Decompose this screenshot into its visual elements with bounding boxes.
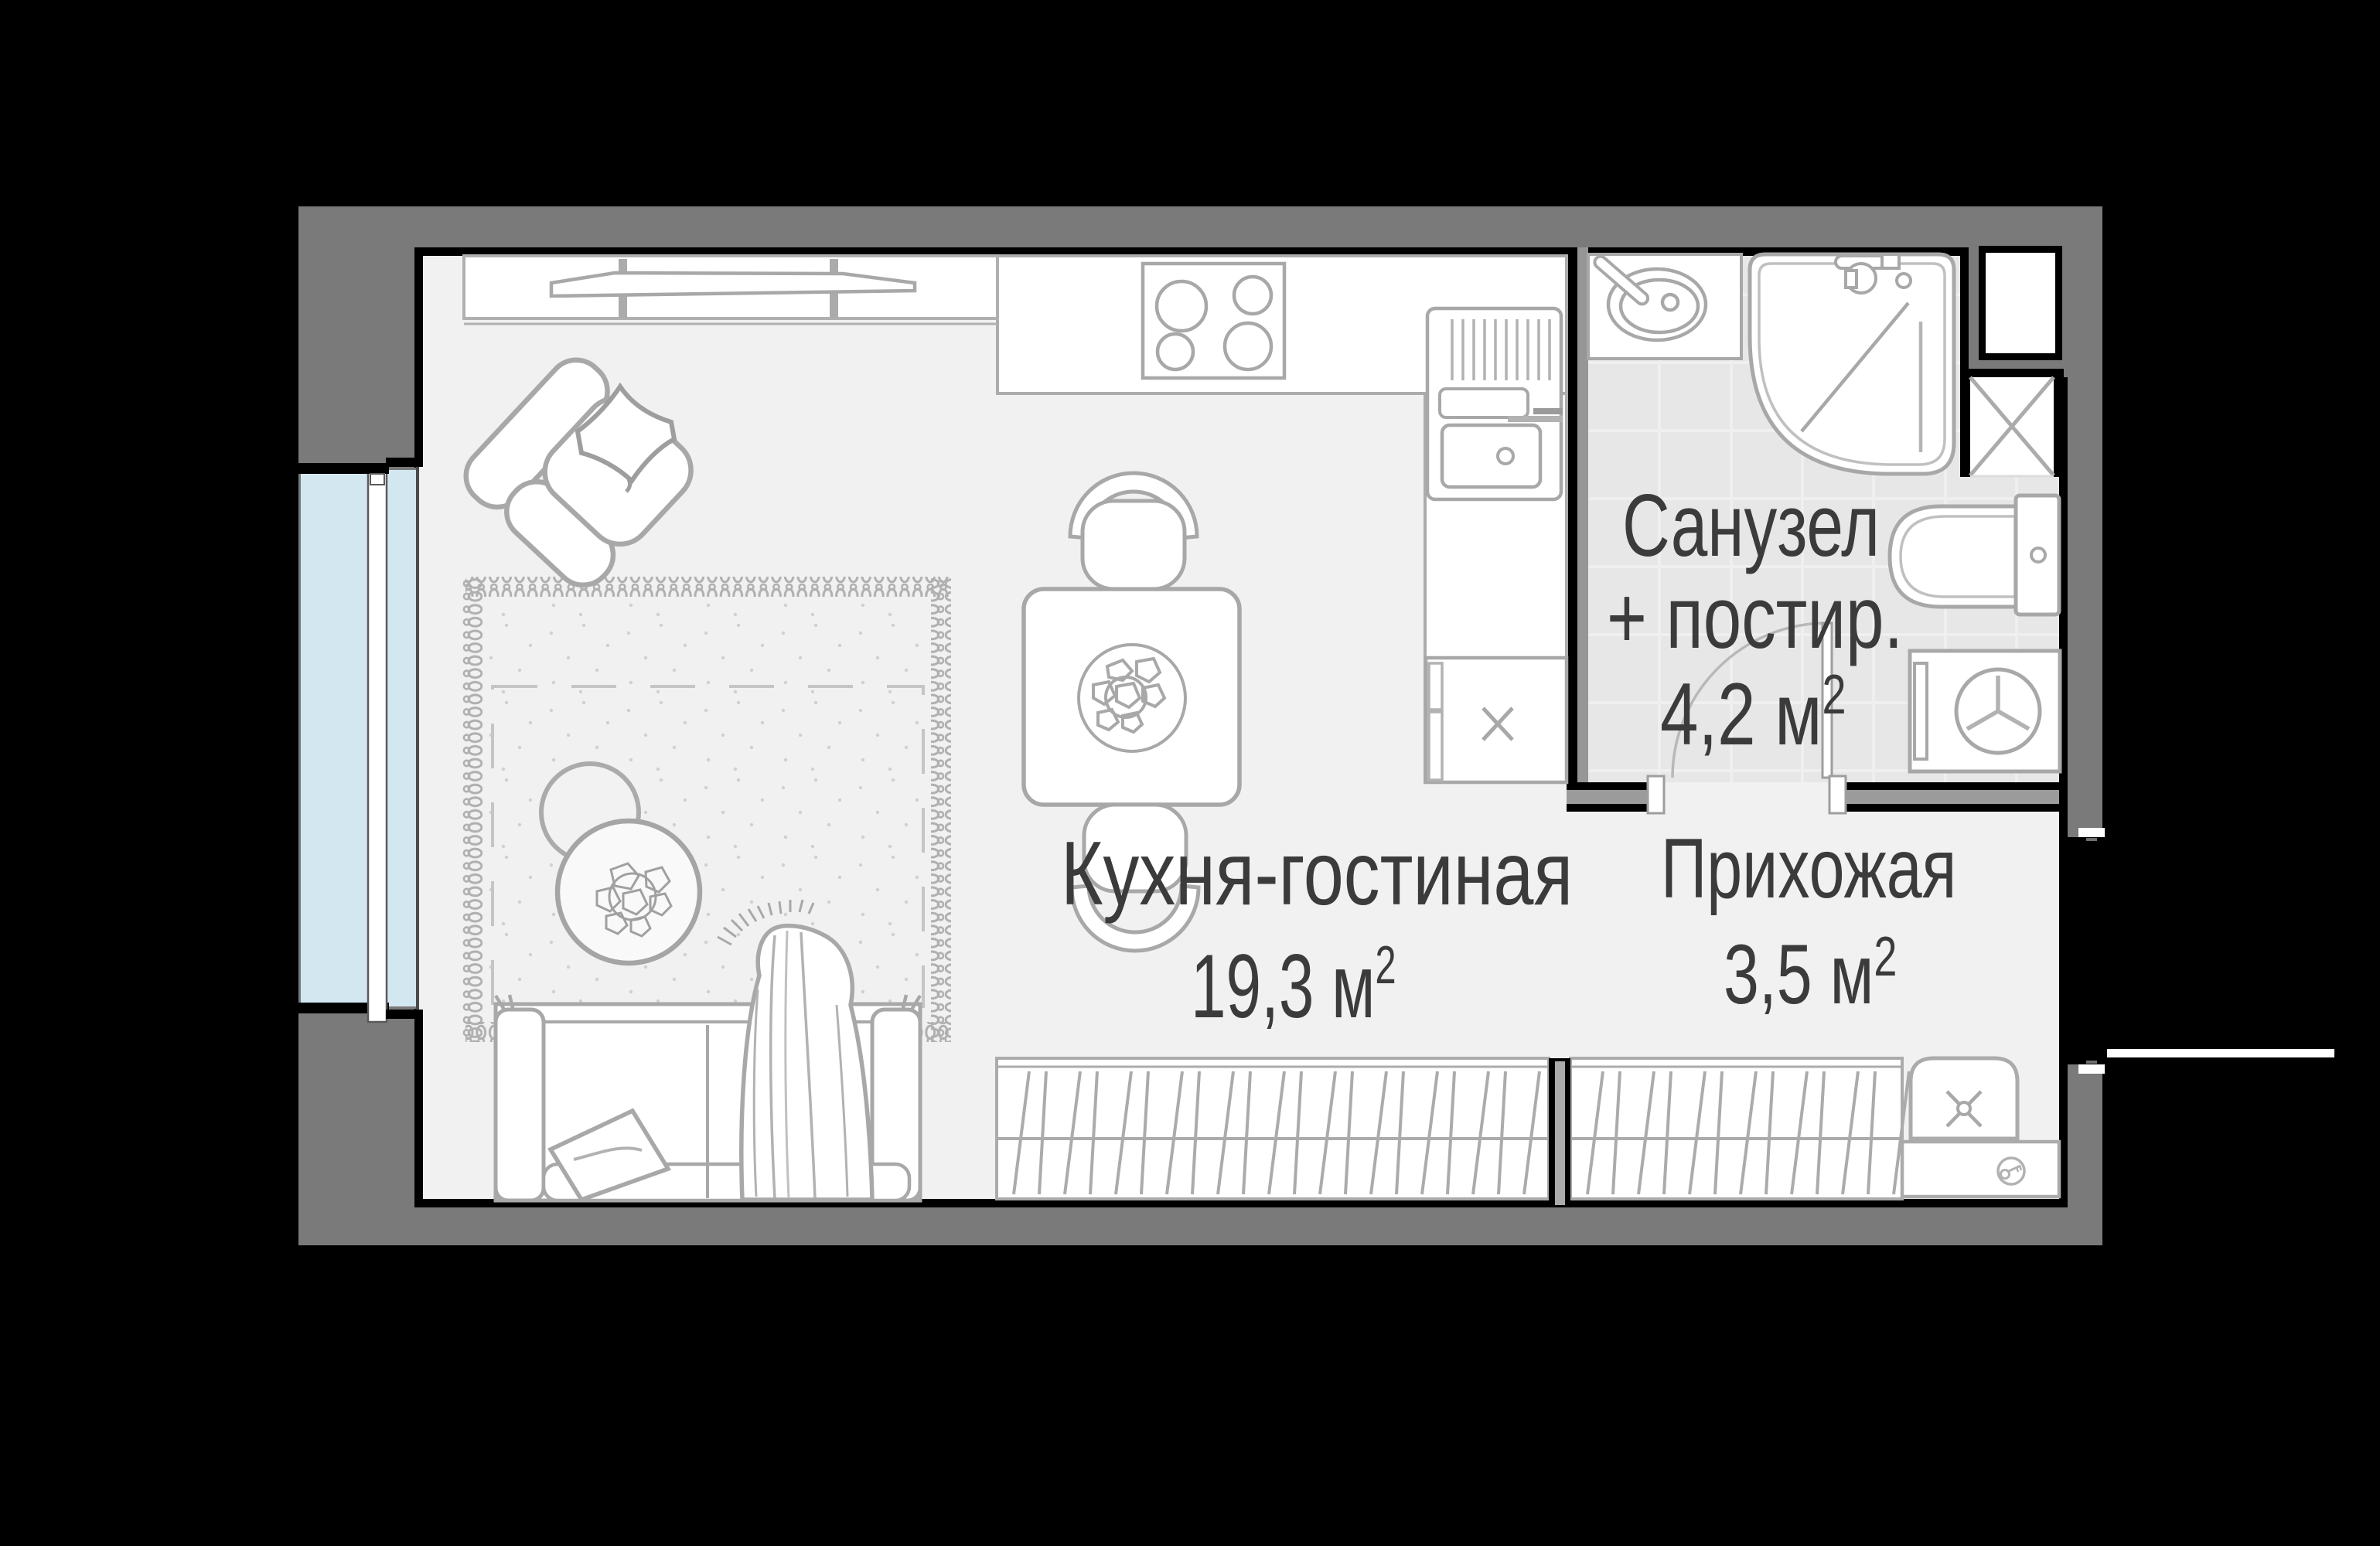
svg-text:+ постир.: + постир. [1607, 567, 1903, 666]
svg-text:Прихожая: Прихожая [1661, 820, 1956, 915]
svg-text:Санузел: Санузел [1622, 477, 1880, 575]
svg-text:4,2 м2: 4,2 м2 [1660, 663, 1846, 763]
svg-text:Кухня-гостиная: Кухня-гостиная [1061, 823, 1573, 924]
svg-text:3,5 м2: 3,5 м2 [1724, 926, 1897, 1022]
svg-text:19,3 м2: 19,3 м2 [1191, 934, 1396, 1037]
